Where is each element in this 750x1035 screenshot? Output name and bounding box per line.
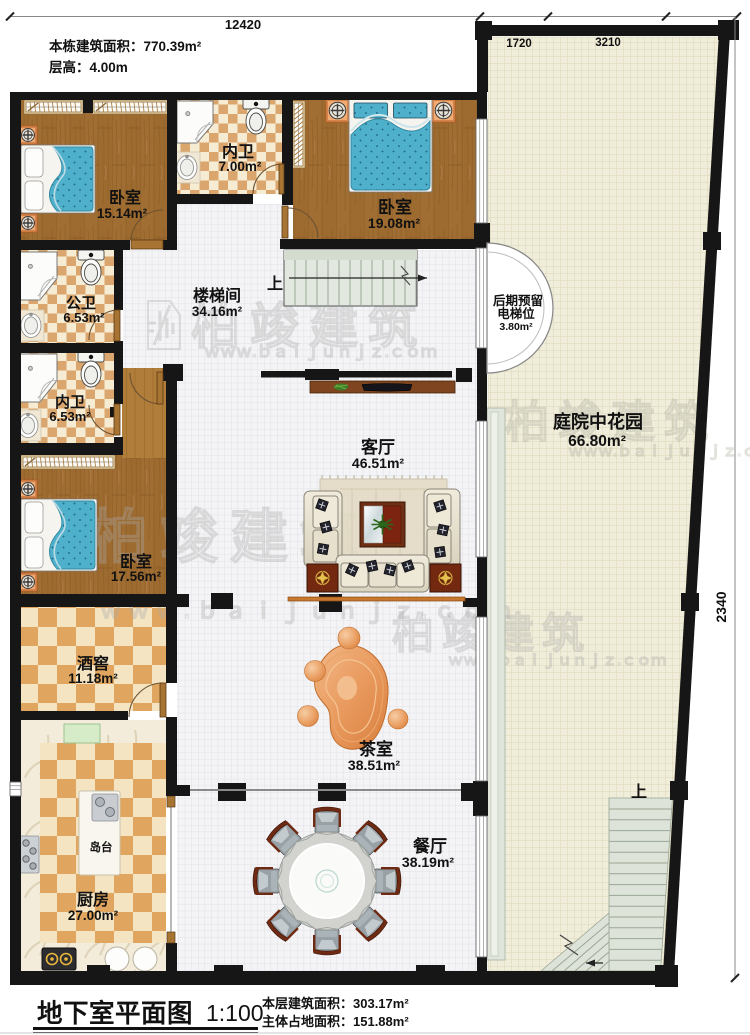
- svg-text:厨房: 厨房: [77, 890, 109, 909]
- svg-text:11.18m²: 11.18m²: [68, 671, 118, 686]
- svg-text:6.53m²: 6.53m²: [49, 409, 91, 424]
- svg-text:岛台: 岛台: [90, 840, 113, 854]
- svg-text:主体占地面积：151.88m²: 主体占地面积：151.88m²: [262, 1014, 409, 1029]
- svg-text:餐厅: 餐厅: [413, 836, 447, 856]
- svg-text:7.00m²: 7.00m²: [219, 159, 262, 174]
- svg-text:3210: 3210: [595, 37, 621, 49]
- svg-text:38.51m²: 38.51m²: [348, 757, 400, 773]
- svg-text:电梯位: 电梯位: [497, 306, 535, 321]
- svg-text:12420: 12420: [225, 17, 261, 32]
- svg-text:38.19m²: 38.19m²: [402, 854, 454, 870]
- svg-text:1720: 1720: [506, 38, 532, 50]
- svg-text:卧室: 卧室: [109, 188, 141, 207]
- svg-text:后期预留: 后期预留: [493, 293, 543, 308]
- svg-text:卧室: 卧室: [378, 197, 412, 217]
- svg-text:17.56m²: 17.56m²: [111, 569, 162, 584]
- svg-text:庭院中花园: 庭院中花园: [553, 411, 643, 432]
- svg-text:34.16m²: 34.16m²: [192, 304, 243, 319]
- svg-text:2340: 2340: [713, 591, 729, 622]
- svg-text:46.51m²: 46.51m²: [352, 455, 404, 471]
- svg-text:层高：4.00m: 层高：4.00m: [49, 59, 128, 75]
- svg-text:15.14m²: 15.14m²: [97, 206, 148, 221]
- svg-text:1:100: 1:100: [206, 1000, 264, 1026]
- svg-text:19.08m²: 19.08m²: [368, 215, 420, 231]
- svg-text:上: 上: [631, 783, 647, 801]
- svg-text:ｗｗｗ.ｂａｉｊｕｎｊｚ.ｃｏｍ: ｗｗｗ.ｂａｉｊｕｎｊｚ.ｃｏｍ: [204, 343, 437, 362]
- svg-text:27.00m²: 27.00m²: [68, 908, 119, 923]
- svg-text:客厅: 客厅: [360, 437, 395, 457]
- svg-text:地下室平面图: 地下室平面图: [37, 999, 193, 1028]
- svg-text:66.80m²: 66.80m²: [568, 433, 626, 450]
- svg-text:6.53m²: 6.53m²: [63, 310, 105, 325]
- svg-text:3.80m²: 3.80m²: [499, 321, 533, 333]
- svg-text:本栋建筑面积：770.39m²: 本栋建筑面积：770.39m²: [49, 38, 202, 54]
- svg-text:本层建筑面积：303.17m²: 本层建筑面积：303.17m²: [262, 996, 409, 1011]
- svg-text:楼梯间: 楼梯间: [193, 286, 241, 305]
- svg-text:上: 上: [267, 275, 283, 293]
- svg-text:茶室: 茶室: [359, 739, 393, 759]
